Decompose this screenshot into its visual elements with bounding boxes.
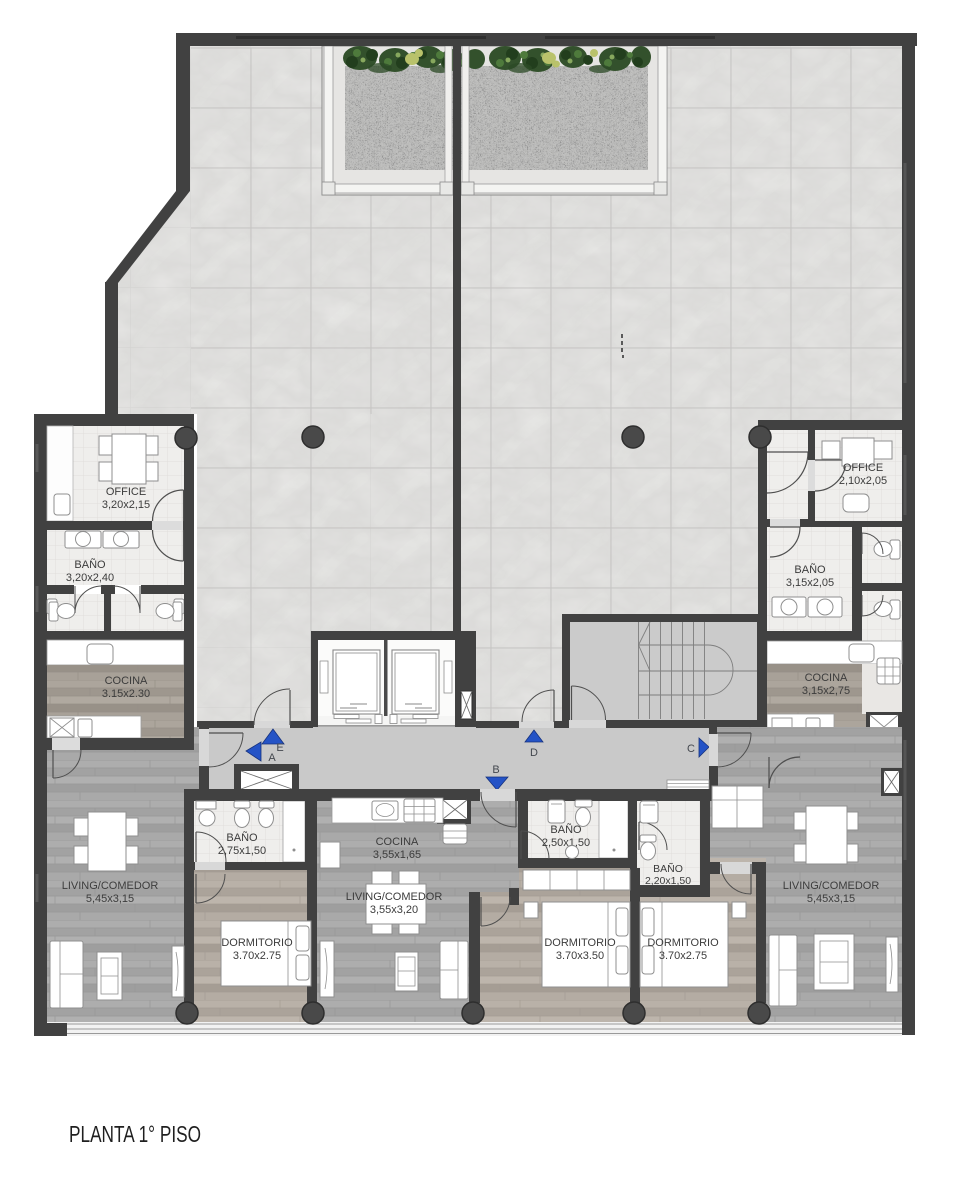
svg-text:BAÑO: BAÑO <box>74 558 106 571</box>
svg-text:5,45x3,15: 5,45x3,15 <box>807 893 855 905</box>
svg-text:3.70x3.50: 3.70x3.50 <box>556 950 604 962</box>
svg-text:BAÑO: BAÑO <box>653 862 683 875</box>
svg-text:PLANTA 1° PISO: PLANTA 1° PISO <box>69 1121 201 1147</box>
svg-text:A: A <box>268 752 276 764</box>
svg-text:DORMITORIO: DORMITORIO <box>647 937 719 949</box>
svg-text:2,50x1,50: 2,50x1,50 <box>542 837 590 849</box>
svg-text:D: D <box>530 747 538 759</box>
svg-text:C: C <box>687 743 695 755</box>
svg-text:LIVING/COMEDOR: LIVING/COMEDOR <box>62 880 159 892</box>
svg-text:OFFICE: OFFICE <box>843 462 883 474</box>
svg-text:COCINA: COCINA <box>376 836 419 848</box>
svg-text:OFFICE: OFFICE <box>106 486 146 498</box>
svg-text:3.70x2.75: 3.70x2.75 <box>659 950 707 962</box>
svg-text:3,55x3,20: 3,55x3,20 <box>370 904 418 916</box>
svg-text:3,20x2,40: 3,20x2,40 <box>66 572 114 584</box>
svg-text:2,10x2,05: 2,10x2,05 <box>839 475 887 487</box>
svg-text:BAÑO: BAÑO <box>794 563 826 576</box>
svg-text:B: B <box>492 764 499 776</box>
svg-text:2,20x1,50: 2,20x1,50 <box>645 875 691 887</box>
svg-text:5,45x3,15: 5,45x3,15 <box>86 893 134 905</box>
svg-text:3,15x2,05: 3,15x2,05 <box>786 577 834 589</box>
svg-text:3.15x2.30: 3.15x2.30 <box>102 688 150 700</box>
svg-text:3,55x1,65: 3,55x1,65 <box>373 849 421 861</box>
svg-text:DORMITORIO: DORMITORIO <box>221 937 293 949</box>
svg-text:COCINA: COCINA <box>105 675 148 687</box>
svg-text:3.70x2.75: 3.70x2.75 <box>233 950 281 962</box>
svg-text:LIVING/COMEDOR: LIVING/COMEDOR <box>346 891 443 903</box>
svg-text:E: E <box>276 742 283 754</box>
svg-text:LIVING/COMEDOR: LIVING/COMEDOR <box>783 880 880 892</box>
svg-text:3,15x2,75: 3,15x2,75 <box>802 685 850 697</box>
svg-text:COCINA: COCINA <box>805 672 848 684</box>
svg-text:DORMITORIO: DORMITORIO <box>544 937 616 949</box>
svg-text:BAÑO: BAÑO <box>550 823 582 836</box>
svg-text:3,20x2,15: 3,20x2,15 <box>102 499 150 511</box>
svg-text:2,75x1,50: 2,75x1,50 <box>218 845 266 857</box>
svg-text:BAÑO: BAÑO <box>226 831 258 844</box>
